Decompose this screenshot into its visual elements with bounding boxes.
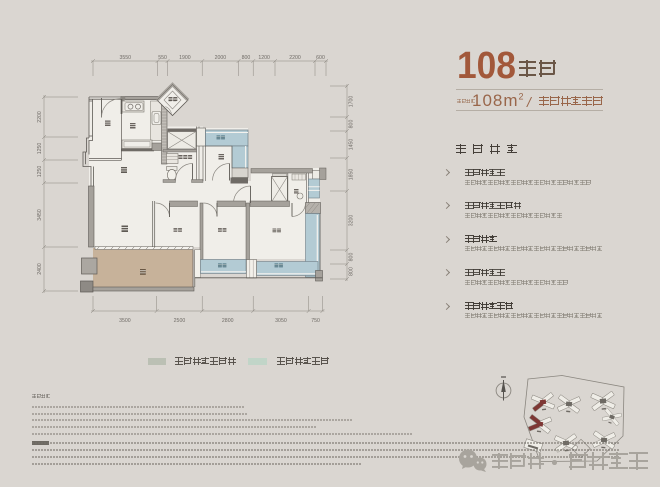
svg-text:800: 800 xyxy=(349,267,355,276)
svg-text:2200: 2200 xyxy=(289,55,301,61)
svg-text:750: 750 xyxy=(311,318,320,324)
svg-text:1850: 1850 xyxy=(349,169,355,181)
svg-text:3450: 3450 xyxy=(37,209,43,221)
svg-text:3200: 3200 xyxy=(349,215,355,227)
svg-text:2000: 2000 xyxy=(215,55,227,61)
svg-text:1200: 1200 xyxy=(258,55,270,61)
svg-text:800: 800 xyxy=(349,253,355,262)
svg-text:2500: 2500 xyxy=(174,318,186,324)
svg-text:1700: 1700 xyxy=(349,96,355,108)
svg-text:550: 550 xyxy=(158,55,167,61)
svg-text:2200: 2200 xyxy=(37,111,43,123)
svg-text:600: 600 xyxy=(316,55,325,61)
svg-text:2400: 2400 xyxy=(37,263,43,275)
svg-text:3550: 3550 xyxy=(120,55,132,61)
svg-text:800: 800 xyxy=(349,120,355,129)
svg-text:1250: 1250 xyxy=(37,143,43,155)
svg-text:2800: 2800 xyxy=(222,318,234,324)
svg-text:1250: 1250 xyxy=(37,166,43,178)
svg-text:1450: 1450 xyxy=(349,139,355,151)
svg-text:1900: 1900 xyxy=(179,55,191,61)
svg-text:800: 800 xyxy=(242,55,251,61)
svg-text:3050: 3050 xyxy=(275,318,287,324)
svg-text:3500: 3500 xyxy=(119,318,131,324)
